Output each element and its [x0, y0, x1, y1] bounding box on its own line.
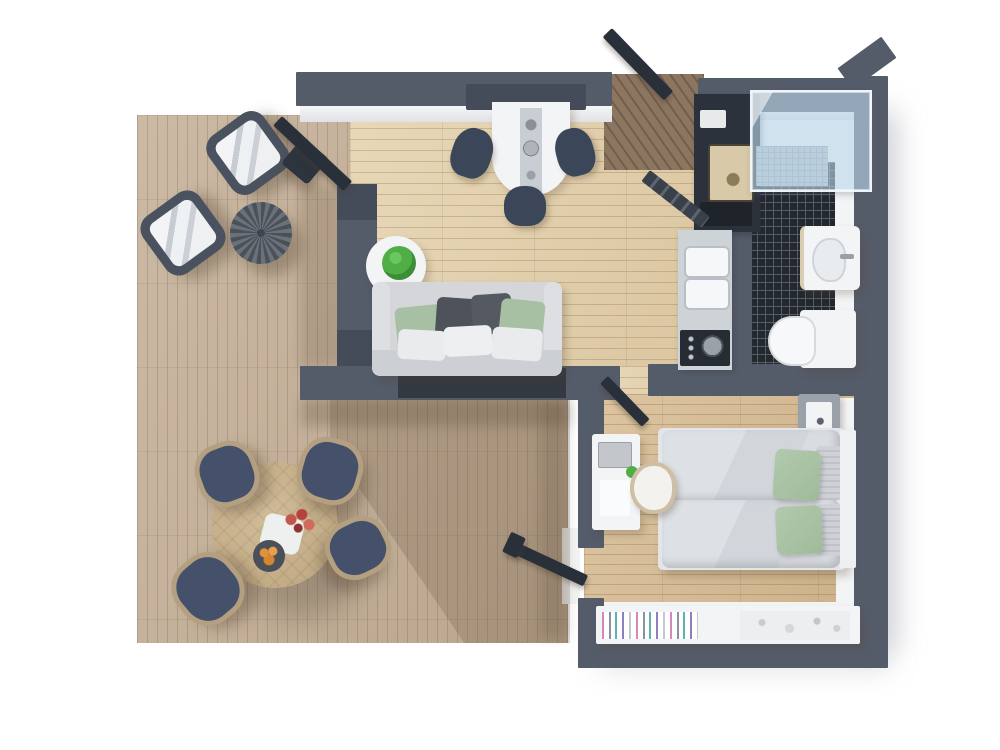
- fruit-bowl: [253, 540, 285, 572]
- kitchen-unit-item: [700, 110, 726, 128]
- wall-shadow-under-living-wall: [302, 398, 570, 426]
- desk-chair: [630, 462, 676, 514]
- wall-shadow-near-bedroom: [540, 402, 568, 638]
- sofa-pillow-white-3: [491, 326, 543, 361]
- bathroom-sink-faucet: [840, 254, 854, 259]
- floor-plan-canvas: [0, 0, 1000, 750]
- flowers: [282, 506, 318, 540]
- shelf-books: [602, 612, 698, 639]
- wicker-ottoman: [230, 202, 292, 264]
- dining-chair-bottom: [504, 186, 546, 226]
- dining-table-steel-inset: [520, 108, 542, 192]
- coffee-machine: [708, 144, 754, 202]
- kitchen-sink-basin-1: [684, 246, 730, 278]
- shelf-clothes: [740, 611, 850, 640]
- green-pillow-1: [772, 448, 821, 501]
- shower-enclosure: [750, 90, 872, 192]
- cooktop: [680, 330, 730, 366]
- sofa-pillow-white-2: [443, 325, 493, 357]
- kitchen-bath-divider-wall: [730, 220, 752, 368]
- headboard: [840, 430, 856, 568]
- desk-monitor: [598, 442, 632, 468]
- living-left-wall-cap-bottom: [337, 330, 377, 368]
- oven: [700, 202, 752, 226]
- bathroom-sink-bowl: [812, 238, 846, 282]
- sofa: [372, 282, 562, 376]
- potted-plant: [382, 246, 416, 280]
- toilet-bowl: [768, 316, 816, 366]
- desk-papers: [600, 480, 630, 516]
- green-pillow-2: [775, 505, 823, 555]
- kitchen-sink-basin-2: [684, 278, 730, 310]
- sofa-pillow-white-1: [397, 329, 447, 361]
